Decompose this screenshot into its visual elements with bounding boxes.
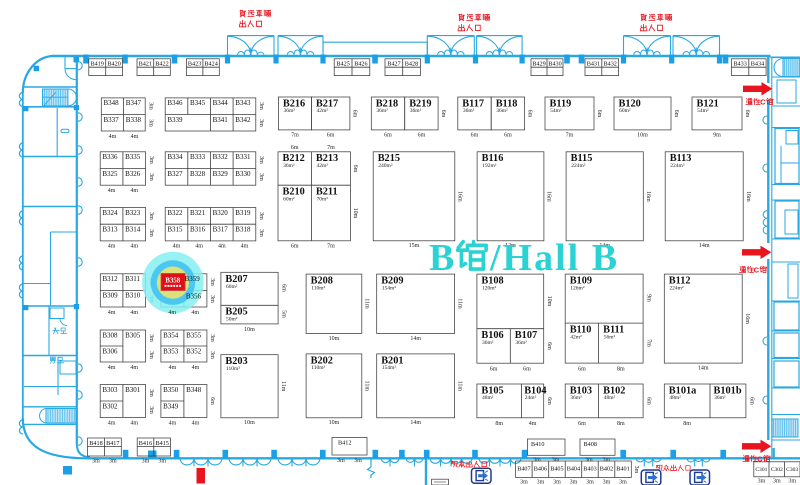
svg-text:36m²: 36m² <box>515 340 527 346</box>
svg-text:3m: 3m <box>585 458 593 464</box>
svg-text:11m: 11m <box>456 381 462 392</box>
svg-text:B311: B311 <box>125 275 140 283</box>
svg-text:10m: 10m <box>244 420 255 426</box>
svg-text:3m: 3m <box>603 479 611 485</box>
svg-text:6m: 6m <box>291 145 299 151</box>
svg-text:B347: B347 <box>126 99 142 107</box>
svg-text:3m: 3m <box>258 119 264 127</box>
svg-text:16m: 16m <box>744 313 750 324</box>
svg-text:6m: 6m <box>327 132 335 138</box>
svg-text:4m: 4m <box>130 244 138 250</box>
svg-text:3m: 3m <box>586 479 594 485</box>
svg-text:6m: 6m <box>352 165 358 173</box>
svg-text:3m: 3m <box>602 458 610 464</box>
svg-text:3m: 3m <box>209 351 215 359</box>
svg-text:/Hall B: /Hall B <box>489 237 619 279</box>
svg-text:3m: 3m <box>147 102 153 110</box>
svg-text:B345: B345 <box>190 99 206 107</box>
svg-text:7m: 7m <box>291 132 299 138</box>
svg-text:B319: B319 <box>235 209 251 217</box>
svg-text:6m: 6m <box>291 243 299 249</box>
svg-text:10m: 10m <box>637 132 648 138</box>
svg-text:6m: 6m <box>646 397 652 405</box>
svg-text:224m²: 224m² <box>670 163 685 169</box>
svg-text:B323: B323 <box>125 209 141 217</box>
svg-text:B317: B317 <box>213 226 229 234</box>
svg-text:C: C <box>760 98 766 107</box>
svg-text:224m²: 224m² <box>571 163 586 169</box>
svg-text:42m²: 42m² <box>570 334 582 340</box>
svg-text:B343: B343 <box>235 99 251 107</box>
svg-text:4m: 4m <box>130 188 138 194</box>
svg-text:6m: 6m <box>578 366 586 372</box>
svg-text:B321: B321 <box>190 209 206 217</box>
svg-text:B312: B312 <box>103 275 119 283</box>
svg-text:B302: B302 <box>102 402 118 410</box>
svg-text:36m²: 36m² <box>283 163 295 169</box>
svg-text:4m: 4m <box>195 244 203 250</box>
svg-text:3m: 3m <box>758 479 766 485</box>
svg-text:B313: B313 <box>102 226 118 234</box>
svg-text:4m: 4m <box>108 188 116 194</box>
svg-text:36m²: 36m² <box>482 340 494 346</box>
svg-text:B355: B355 <box>186 331 202 339</box>
svg-text:126m²: 126m² <box>570 285 585 291</box>
svg-text:36m²: 36m² <box>496 108 508 114</box>
svg-text:B402: B402 <box>600 466 613 473</box>
svg-text:3m: 3m <box>788 479 796 485</box>
svg-text:60m²: 60m² <box>283 196 295 202</box>
svg-text:4m: 4m <box>108 365 116 371</box>
svg-text:10m: 10m <box>352 208 358 219</box>
svg-text:B420: B420 <box>107 60 120 67</box>
svg-text:3m: 3m <box>148 212 154 220</box>
svg-text:3m: 3m <box>619 479 627 485</box>
svg-text:B434: B434 <box>751 60 764 67</box>
svg-text:15m: 15m <box>409 243 420 249</box>
svg-text:B421: B421 <box>139 60 152 67</box>
svg-text:3m: 3m <box>148 406 154 414</box>
svg-text:7m: 7m <box>646 339 652 347</box>
svg-text:3m: 3m <box>92 458 100 464</box>
svg-text:B337: B337 <box>104 116 120 124</box>
svg-text:B309: B309 <box>103 292 119 300</box>
svg-text:6m: 6m <box>546 342 552 350</box>
svg-text:110m²: 110m² <box>226 366 240 372</box>
svg-text:B350: B350 <box>163 386 179 394</box>
svg-text:16m: 16m <box>645 191 651 202</box>
svg-text:3m: 3m <box>148 173 154 181</box>
svg-text:3m: 3m <box>337 458 345 464</box>
svg-text:14m: 14m <box>410 420 421 426</box>
svg-text:3m: 3m <box>773 479 781 485</box>
svg-text:6m: 6m <box>440 110 446 118</box>
svg-text:B310: B310 <box>125 292 141 300</box>
svg-text:6m: 6m <box>673 110 679 118</box>
svg-text:240m²: 240m² <box>378 163 393 169</box>
svg-text:3m: 3m <box>209 334 215 342</box>
svg-text:B329: B329 <box>213 170 229 178</box>
svg-text:B335: B335 <box>125 153 141 161</box>
svg-text:6m: 6m <box>744 110 750 118</box>
svg-text:B344: B344 <box>213 99 229 107</box>
svg-text:3m: 3m <box>537 479 545 485</box>
svg-text:B401: B401 <box>616 466 629 473</box>
svg-text:4m: 4m <box>130 310 138 316</box>
svg-text:B407: B407 <box>517 466 530 473</box>
svg-text:4m: 4m <box>109 134 117 140</box>
svg-text:3m: 3m <box>147 119 153 127</box>
svg-text:6m: 6m <box>471 132 479 138</box>
svg-text:B305: B305 <box>125 331 141 339</box>
svg-text:6m: 6m <box>748 397 754 405</box>
svg-text:3m: 3m <box>148 334 154 342</box>
svg-text:56m²: 56m² <box>604 334 616 340</box>
svg-text:8m: 8m <box>683 421 691 427</box>
svg-text:24m²: 24m² <box>525 395 537 401</box>
svg-text:B359: B359 <box>185 275 201 283</box>
svg-text:B339: B339 <box>167 116 183 124</box>
svg-text:6m: 6m <box>596 110 602 118</box>
svg-text:B334: B334 <box>167 153 183 161</box>
svg-text:B325: B325 <box>102 170 118 178</box>
svg-text:54m²: 54m² <box>550 108 562 114</box>
svg-text:3m: 3m <box>109 458 117 464</box>
svg-text:42m²: 42m² <box>317 163 329 169</box>
svg-text:11m: 11m <box>364 298 370 309</box>
svg-text:7m: 7m <box>566 132 574 138</box>
svg-text:B430: B430 <box>548 60 561 67</box>
svg-text:110m²: 110m² <box>311 285 325 291</box>
svg-text:B320: B320 <box>213 209 229 217</box>
svg-text:154m²: 154m² <box>382 365 397 371</box>
svg-text:B408: B408 <box>584 441 597 448</box>
svg-text:B315: B315 <box>167 226 183 234</box>
svg-text:36m²: 36m² <box>570 395 582 401</box>
svg-text:3m: 3m <box>258 212 264 220</box>
svg-text:48m²: 48m² <box>482 395 494 401</box>
svg-text:3m: 3m <box>209 278 215 286</box>
svg-text:4m: 4m <box>108 310 116 316</box>
svg-text:5m: 5m <box>281 310 287 318</box>
svg-text:6m: 6m <box>418 132 426 138</box>
svg-text:50m²: 50m² <box>226 316 238 322</box>
svg-text:4m: 4m <box>218 244 226 250</box>
svg-text:8m: 8m <box>495 421 503 427</box>
svg-text:B342: B342 <box>235 116 251 124</box>
svg-text:B332: B332 <box>213 153 229 161</box>
svg-text:B: B <box>429 237 456 279</box>
svg-text:B318: B318 <box>235 226 251 234</box>
svg-text:B324: B324 <box>102 209 118 217</box>
svg-text:9m: 9m <box>713 132 721 138</box>
svg-text:8m: 8m <box>617 421 625 427</box>
svg-text:C302: C302 <box>771 467 783 473</box>
svg-text:3m: 3m <box>520 479 528 485</box>
svg-text:7m: 7m <box>327 145 335 151</box>
svg-text:B428: B428 <box>405 60 418 67</box>
svg-text:4m: 4m <box>108 420 116 426</box>
svg-text:B348: B348 <box>186 386 202 394</box>
svg-text:B406: B406 <box>534 466 547 473</box>
svg-text:4m: 4m <box>192 420 200 426</box>
svg-text:B425: B425 <box>336 60 349 67</box>
svg-text:B429: B429 <box>532 60 545 67</box>
svg-text:4m: 4m <box>241 244 249 250</box>
svg-text:42m²: 42m² <box>317 108 329 114</box>
svg-text:16m: 16m <box>745 191 751 202</box>
svg-text:4m: 4m <box>192 365 200 371</box>
svg-text:36m²: 36m² <box>376 108 388 114</box>
svg-text:6m: 6m <box>209 397 215 405</box>
svg-text:B303: B303 <box>102 386 118 394</box>
svg-text:3m: 3m <box>258 229 264 237</box>
svg-text:B333: B333 <box>190 153 206 161</box>
svg-text:7m: 7m <box>327 243 335 249</box>
svg-text:3m: 3m <box>552 458 560 464</box>
svg-text:4m: 4m <box>173 244 181 250</box>
svg-text:11m: 11m <box>280 381 286 392</box>
svg-text:C303: C303 <box>786 467 798 473</box>
svg-text:B353: B353 <box>163 347 179 355</box>
svg-text:8m: 8m <box>617 366 625 372</box>
svg-text:4m: 4m <box>168 310 176 316</box>
svg-text:14m: 14m <box>410 336 421 342</box>
svg-text:3m: 3m <box>570 479 578 485</box>
svg-text:3m: 3m <box>258 156 264 164</box>
svg-text:48m²: 48m² <box>604 395 616 401</box>
svg-text:3m: 3m <box>158 458 166 464</box>
svg-text:B424: B424 <box>204 60 217 67</box>
svg-text:10m: 10m <box>329 420 340 426</box>
svg-text:4m: 4m <box>169 420 177 426</box>
svg-text:6m: 6m <box>490 366 498 372</box>
svg-text:60m²: 60m² <box>226 284 238 290</box>
svg-text:10m: 10m <box>244 327 255 333</box>
svg-text:48m²: 48m² <box>669 395 681 401</box>
svg-text:B346: B346 <box>167 99 183 107</box>
svg-text:54m²: 54m² <box>697 108 709 114</box>
svg-text:B422: B422 <box>155 60 168 67</box>
svg-text:10m: 10m <box>329 336 340 342</box>
svg-text:B301: B301 <box>125 386 141 394</box>
svg-text:B341: B341 <box>213 116 229 124</box>
svg-text:36m²: 36m² <box>714 395 726 401</box>
svg-text:110m²: 110m² <box>311 365 325 371</box>
svg-text:4m: 4m <box>130 420 138 426</box>
svg-text:B432: B432 <box>603 60 616 67</box>
svg-text:6m: 6m <box>281 284 287 292</box>
svg-text:3m: 3m <box>258 102 264 110</box>
svg-text:16m: 16m <box>457 191 463 202</box>
svg-text:B419: B419 <box>90 60 103 67</box>
svg-text:B352: B352 <box>186 347 202 355</box>
svg-text:6m: 6m <box>546 397 552 405</box>
svg-text:B410: B410 <box>531 441 544 448</box>
svg-text:B322: B322 <box>167 209 183 217</box>
svg-text:6m: 6m <box>352 110 358 118</box>
svg-text:C301: C301 <box>755 467 767 473</box>
svg-text:60m²: 60m² <box>619 108 631 114</box>
svg-text:B405: B405 <box>550 466 563 473</box>
svg-text:3m: 3m <box>633 466 639 474</box>
svg-text:36m²: 36m² <box>410 108 422 114</box>
svg-text:6m: 6m <box>504 132 512 138</box>
svg-text:B349: B349 <box>163 402 179 410</box>
svg-text:B431: B431 <box>587 60 600 67</box>
svg-text:B314: B314 <box>125 226 141 234</box>
svg-text:B358: B358 <box>165 277 180 284</box>
svg-text:B331: B331 <box>235 153 251 161</box>
svg-text:B415: B415 <box>155 440 168 447</box>
svg-text:6m: 6m <box>526 110 532 118</box>
svg-text:3m: 3m <box>148 351 154 359</box>
svg-text:4m: 4m <box>529 421 537 427</box>
svg-text:4m: 4m <box>131 134 139 140</box>
svg-text:B336: B336 <box>102 153 118 161</box>
svg-text:4m: 4m <box>108 244 116 250</box>
svg-text:3m: 3m <box>148 389 154 397</box>
svg-text:B330: B330 <box>235 170 251 178</box>
svg-text:16m: 16m <box>546 191 552 202</box>
svg-text:B433: B433 <box>733 60 746 67</box>
svg-text:192m²: 192m² <box>482 163 497 169</box>
svg-text:B403: B403 <box>583 466 596 473</box>
svg-text:B426: B426 <box>354 60 367 67</box>
svg-text:B356: B356 <box>186 292 202 300</box>
svg-text:70m²: 70m² <box>317 196 329 202</box>
svg-text:B338: B338 <box>126 116 142 124</box>
svg-text:4m: 4m <box>191 310 199 316</box>
svg-text:3m: 3m <box>354 458 362 464</box>
svg-text:B306: B306 <box>102 347 118 355</box>
svg-text:B417: B417 <box>106 440 119 447</box>
svg-text:3m: 3m <box>148 156 154 164</box>
svg-text:B423: B423 <box>188 60 201 67</box>
svg-text:4m: 4m <box>130 365 138 371</box>
svg-text:3m: 3m <box>142 458 150 464</box>
svg-text:3m: 3m <box>533 458 541 464</box>
svg-text:120m²: 120m² <box>482 285 497 291</box>
svg-text:11m: 11m <box>456 298 462 309</box>
svg-text:B416: B416 <box>139 440 152 447</box>
svg-text:B328: B328 <box>190 170 206 178</box>
svg-text:B418: B418 <box>89 440 102 447</box>
svg-text:B316: B316 <box>190 226 206 234</box>
svg-text:4m: 4m <box>169 365 177 371</box>
svg-text:6m: 6m <box>523 366 531 372</box>
svg-text:3m: 3m <box>553 479 561 485</box>
svg-text:14m: 14m <box>698 366 709 372</box>
svg-text:B308: B308 <box>102 331 118 339</box>
svg-text:6m: 6m <box>384 132 392 138</box>
svg-text:B404: B404 <box>567 466 580 473</box>
svg-text:14m: 14m <box>699 243 710 249</box>
svg-text:B354: B354 <box>163 331 179 339</box>
svg-text:B326: B326 <box>125 170 141 178</box>
svg-text:B348: B348 <box>104 99 120 107</box>
svg-text:B412: B412 <box>338 440 351 447</box>
svg-text:36m²: 36m² <box>284 108 296 114</box>
svg-text:3m: 3m <box>258 173 264 181</box>
svg-text:C: C <box>754 266 760 275</box>
svg-text:9m: 9m <box>646 294 652 302</box>
svg-text:154m²: 154m² <box>382 285 397 291</box>
svg-text:224m²: 224m² <box>669 285 684 291</box>
svg-text:6m: 6m <box>578 421 586 427</box>
svg-text:10m: 10m <box>546 296 552 307</box>
svg-text:3m: 3m <box>148 229 154 237</box>
svg-text:3m: 3m <box>209 295 215 303</box>
svg-text:B427: B427 <box>387 60 400 67</box>
svg-text:B327: B327 <box>167 170 183 178</box>
svg-text:36m²: 36m² <box>463 108 475 114</box>
svg-text:11m: 11m <box>364 381 370 392</box>
